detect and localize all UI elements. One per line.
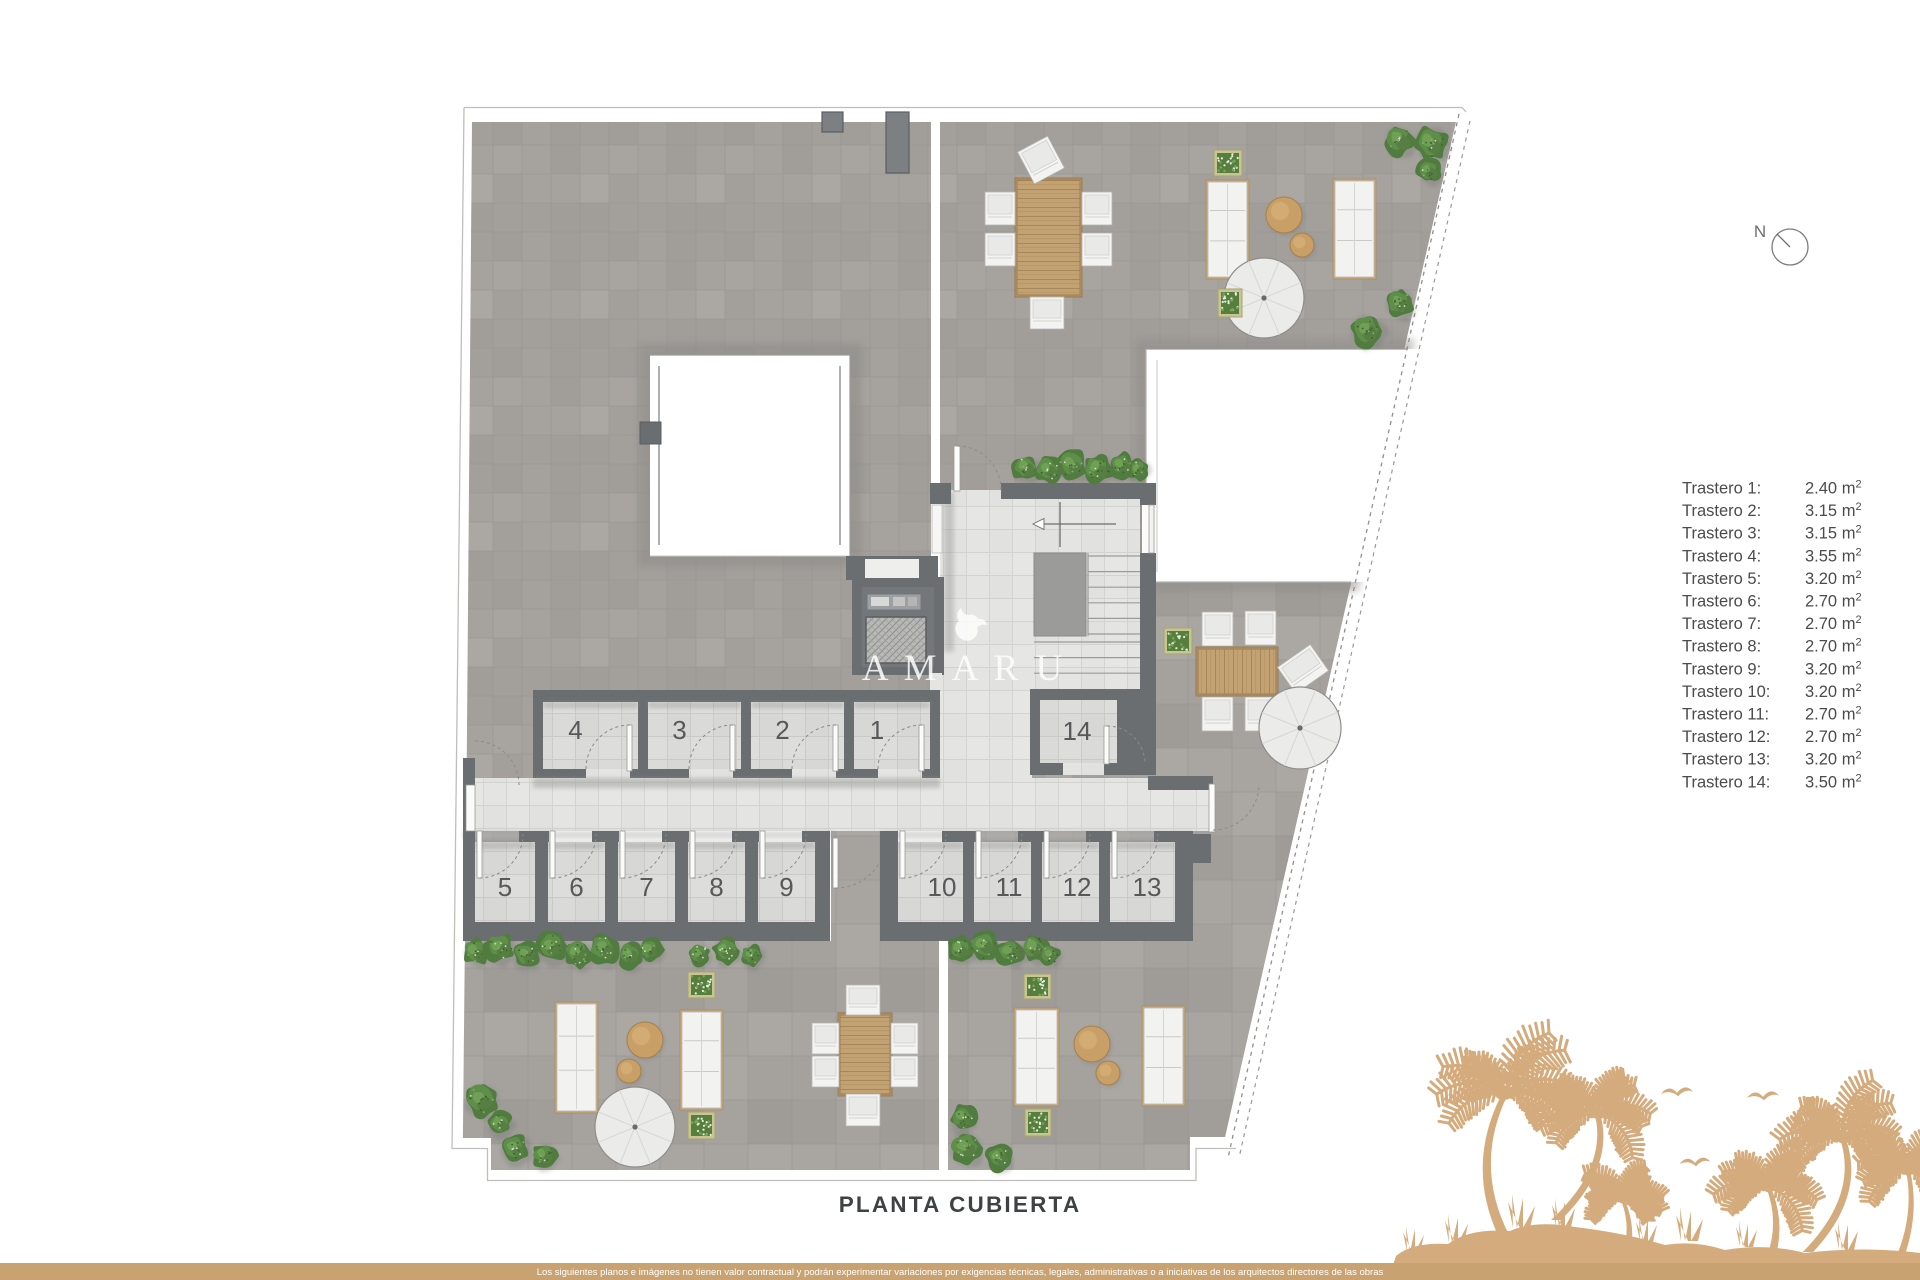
svg-text:3.20 m2: 3.20 m2 — [1805, 682, 1862, 701]
svg-text:Trastero 9:: Trastero 9: — [1682, 660, 1761, 678]
svg-text:Trastero 2:: Trastero 2: — [1682, 502, 1761, 520]
svg-text:3.55 m2: 3.55 m2 — [1805, 546, 1862, 565]
svg-text:1: 1 — [870, 715, 884, 745]
svg-text:Trastero 7:: Trastero 7: — [1682, 615, 1761, 633]
svg-text:Trastero 14:: Trastero 14: — [1682, 773, 1770, 791]
svg-text:10: 10 — [928, 872, 957, 902]
svg-text:Trastero 4:: Trastero 4: — [1682, 547, 1761, 565]
svg-text:Trastero 6:: Trastero 6: — [1682, 593, 1761, 611]
svg-text:Los siguientes planos e imágen: Los siguientes planos e imágenes no tien… — [537, 1267, 1384, 1278]
svg-text:2.70 m2: 2.70 m2 — [1805, 614, 1862, 633]
svg-text:3.20 m2: 3.20 m2 — [1805, 569, 1862, 588]
svg-text:Trastero 5:: Trastero 5: — [1682, 570, 1761, 588]
svg-text:12: 12 — [1063, 872, 1092, 902]
svg-text:Trastero 11:: Trastero 11: — [1682, 706, 1769, 724]
svg-text:3.20 m2: 3.20 m2 — [1805, 659, 1862, 678]
svg-text:Trastero 12:: Trastero 12: — [1682, 728, 1770, 746]
svg-text:4: 4 — [568, 715, 582, 745]
svg-text:3.20 m2: 3.20 m2 — [1805, 750, 1862, 769]
svg-text:3: 3 — [672, 715, 686, 745]
svg-text:Trastero 8:: Trastero 8: — [1682, 638, 1761, 656]
svg-text:13: 13 — [1133, 872, 1162, 902]
svg-text:Trastero 1:: Trastero 1: — [1682, 480, 1761, 498]
svg-text:2.40 m2: 2.40 m2 — [1805, 479, 1862, 498]
svg-text:2.70 m2: 2.70 m2 — [1805, 637, 1862, 656]
svg-text:Trastero 3:: Trastero 3: — [1682, 525, 1761, 543]
svg-text:3.15 m2: 3.15 m2 — [1805, 524, 1862, 543]
svg-text:8: 8 — [709, 872, 723, 902]
svg-text:PLANTA CUBIERTA: PLANTA CUBIERTA — [839, 1192, 1082, 1217]
svg-text:3.15 m2: 3.15 m2 — [1805, 501, 1862, 520]
svg-text:14: 14 — [1063, 716, 1092, 746]
svg-text:6: 6 — [569, 872, 583, 902]
svg-text:Trastero 10:: Trastero 10: — [1682, 683, 1770, 701]
svg-text:Trastero 13:: Trastero 13: — [1682, 751, 1770, 769]
svg-text:11: 11 — [996, 872, 1023, 902]
svg-text:A M A R U: A M A R U — [862, 648, 1067, 689]
svg-text:9: 9 — [779, 872, 793, 902]
svg-text:N: N — [1754, 222, 1766, 241]
svg-text:5: 5 — [498, 872, 512, 902]
svg-text:3.50 m2: 3.50 m2 — [1805, 772, 1862, 791]
svg-text:2.70 m2: 2.70 m2 — [1805, 727, 1862, 746]
svg-text:7: 7 — [639, 872, 653, 902]
svg-text:2: 2 — [775, 715, 789, 745]
svg-text:2.70 m2: 2.70 m2 — [1805, 705, 1862, 724]
svg-text:2.70 m2: 2.70 m2 — [1805, 592, 1862, 611]
